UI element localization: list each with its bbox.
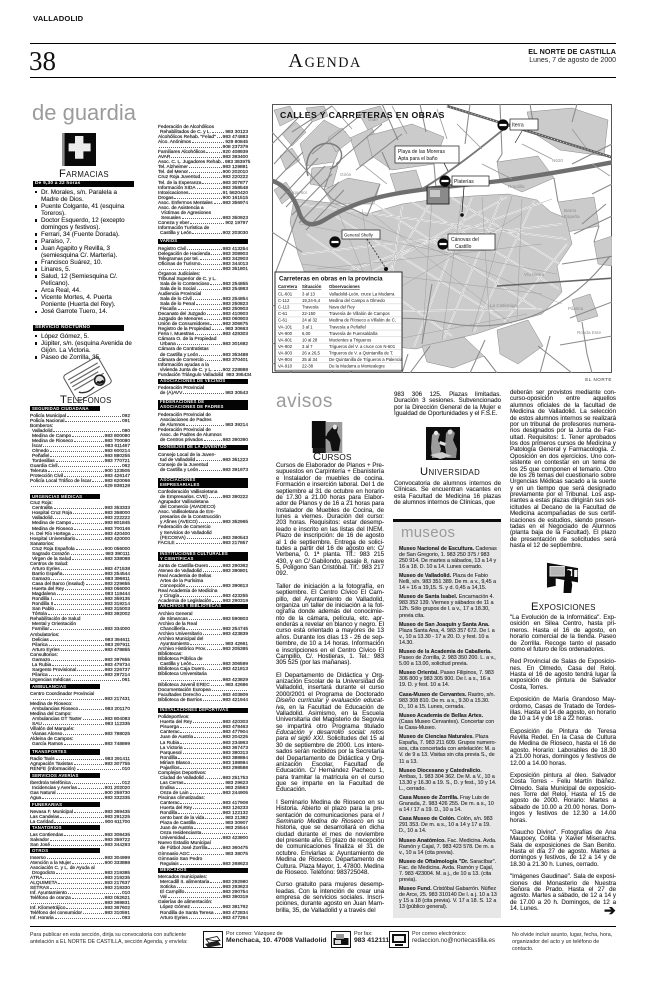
svg-text:La Cistérniga: La Cistérniga (490, 303, 518, 308)
svg-text:Carreteras en obras en la prov: Carreteras en obras en la provincia (279, 276, 383, 283)
svg-text:Barrio: Barrio (564, 208, 577, 213)
svg-text:Apta para el baño: Apta para el baño (398, 156, 438, 162)
svg-text:C-113: C-113 (278, 305, 290, 310)
svg-text:10 al 28: 10 al 28 (302, 337, 318, 342)
svg-text:Iterra: Iterra (512, 122, 524, 128)
svg-text:Nava del Rey: Nava del Rey (329, 305, 356, 310)
svg-text:Observaciones: Observaciones (329, 284, 360, 289)
svg-text:VA-903: VA-903 (278, 350, 293, 355)
svg-text:3 al 13: 3 al 13 (302, 292, 316, 297)
svg-text:3 al 1: 3 al 1 (302, 324, 313, 329)
svg-text:De la Mudarra a Montealegre: De la Mudarra a Montealegre (329, 364, 385, 369)
svg-text:VA-900: VA-900 (278, 331, 293, 336)
svg-text:3 al 7: 3 al 7 (302, 344, 313, 349)
svg-text:Ronda Este: Ronda Este (577, 330, 601, 335)
svg-text:Pilarica: Pilarica (568, 306, 584, 311)
svg-text:C-61: C-61 (278, 311, 288, 316)
svg-text:VA-101: VA-101 (278, 324, 293, 329)
svg-text:N620: N620 (552, 158, 563, 163)
svg-text:España: España (564, 214, 580, 219)
svg-text:VA-902: VA-902 (278, 344, 293, 349)
svg-text:Trigueros del V. a cruce con N: Trigueros del V. a cruce con N-601 (329, 344, 396, 349)
svg-text:CL-601: CL-601 (278, 292, 293, 297)
svg-text:Castillo: Castillo (455, 244, 472, 250)
svg-text:C-112: C-112 (278, 298, 290, 303)
svg-text:26 a 26,5: 26 a 26,5 (302, 350, 321, 355)
svg-text:CALLES Y CARRETERAS EN OBRAS: CALLES Y CARRETERAS EN OBRAS (280, 110, 445, 120)
svg-text:22-150: 22-150 (302, 311, 316, 316)
svg-text:Rondilla: Rondilla (508, 184, 525, 189)
svg-text:VA-904: VA-904 (278, 357, 293, 362)
svg-text:6,00: 6,00 (302, 331, 311, 336)
svg-text:De Quintanilla de Trigueros a: De Quintanilla de Trigueros a Palencia (329, 357, 403, 362)
svg-text:Travesía a Peñafiel: Travesía a Peñafiel (329, 324, 366, 329)
svg-text:C-61: C-61 (278, 318, 288, 323)
svg-text:VA-901: VA-901 (278, 337, 293, 342)
svg-text:Travesía: Travesía (302, 305, 319, 310)
svg-text:Mucientes a Trigueros: Mucientes a Trigueros (329, 337, 371, 342)
svg-text:25 al 34: 25 al 34 (302, 357, 318, 362)
svg-text:Valladolid-León, cruce La Muda: Valladolid-León, cruce La Mudarra (329, 292, 395, 297)
svg-text:Girón: Girón (340, 172, 352, 177)
svg-text:Playa de las Moreras: Playa de las Moreras (398, 149, 445, 155)
svg-text:VA-910: VA-910 (278, 364, 293, 369)
svg-text:Situación: Situación (302, 284, 322, 289)
svg-text:Vía férrea: Vía férrea (524, 272, 545, 277)
svg-text:Travesía de Villalón de Campos: Travesía de Villalón de Campos (329, 311, 390, 316)
svg-text:Trigueros de V. a Quintanilla: Trigueros de V. a Quintanilla de T. (329, 350, 393, 355)
svg-text:General Shelly: General Shelly (344, 232, 374, 237)
svg-text:24 al 32: 24 al 32 (302, 318, 318, 323)
svg-text:22-38: 22-38 (302, 364, 314, 369)
svg-text:Parquesol: Parquesol (286, 190, 307, 195)
svg-text:Platerías: Platerías (454, 179, 474, 185)
svg-text:Medina de Ríoseco a Villalón d: Medina de Ríoseco a Villalón de C. (329, 318, 396, 323)
svg-text:Cánovas del: Cánovas del (451, 237, 479, 243)
svg-text:Medina del Campo a Olmedo: Medina del Campo a Olmedo (329, 298, 385, 303)
svg-text:Travesía de Fuensaldaña: Travesía de Fuensaldaña (329, 331, 378, 336)
svg-text:Carretera: Carretera (278, 284, 298, 289)
svg-text:19,24-5,4: 19,24-5,4 (302, 298, 321, 303)
